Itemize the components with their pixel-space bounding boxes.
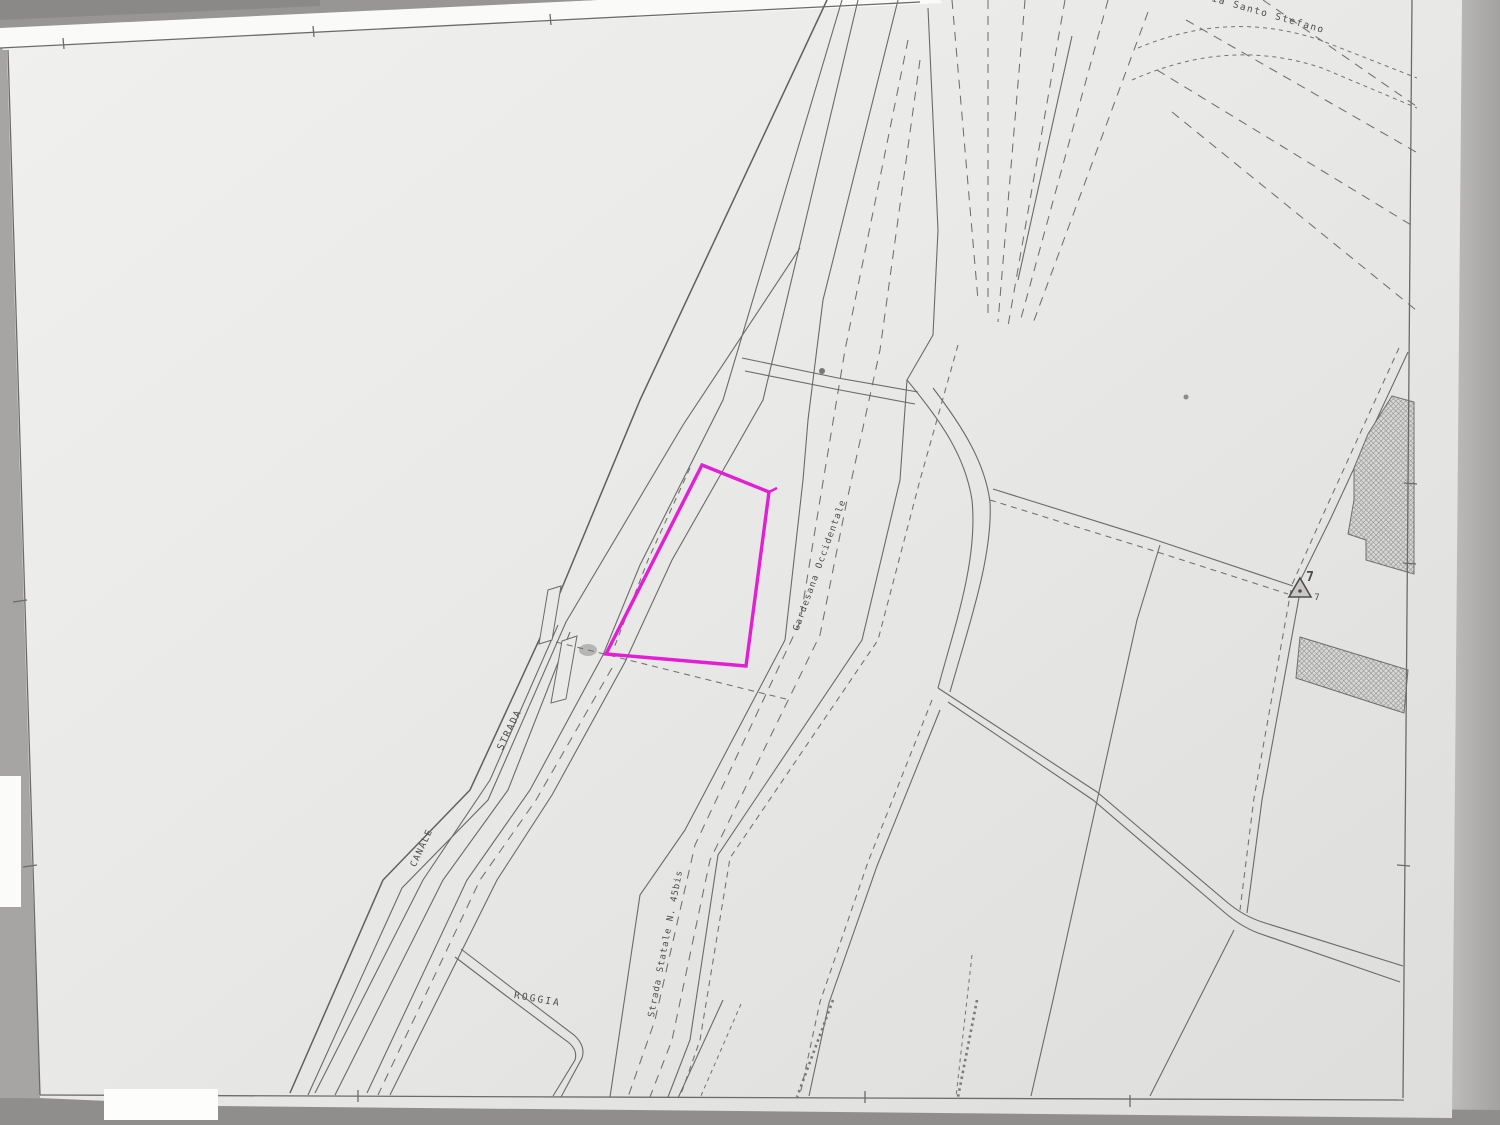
whiteout-bottom-label — [104, 1089, 218, 1120]
ink-smudge — [579, 644, 597, 656]
cadastral-map-canvas: Via Santo StefanoGardesana OccidentaleST… — [0, 0, 1500, 1125]
paper-sheet — [0, 0, 1462, 1118]
scanned-map-sheet: Via Santo StefanoGardesana OccidentaleST… — [0, 0, 1500, 1125]
whiteout-left-strip — [0, 776, 21, 907]
map-dot — [1184, 395, 1189, 400]
label-survey-point-7-small: 7 — [1314, 593, 1319, 603]
map-dot — [819, 368, 825, 374]
label-survey-point-7: 7 — [1306, 570, 1314, 585]
